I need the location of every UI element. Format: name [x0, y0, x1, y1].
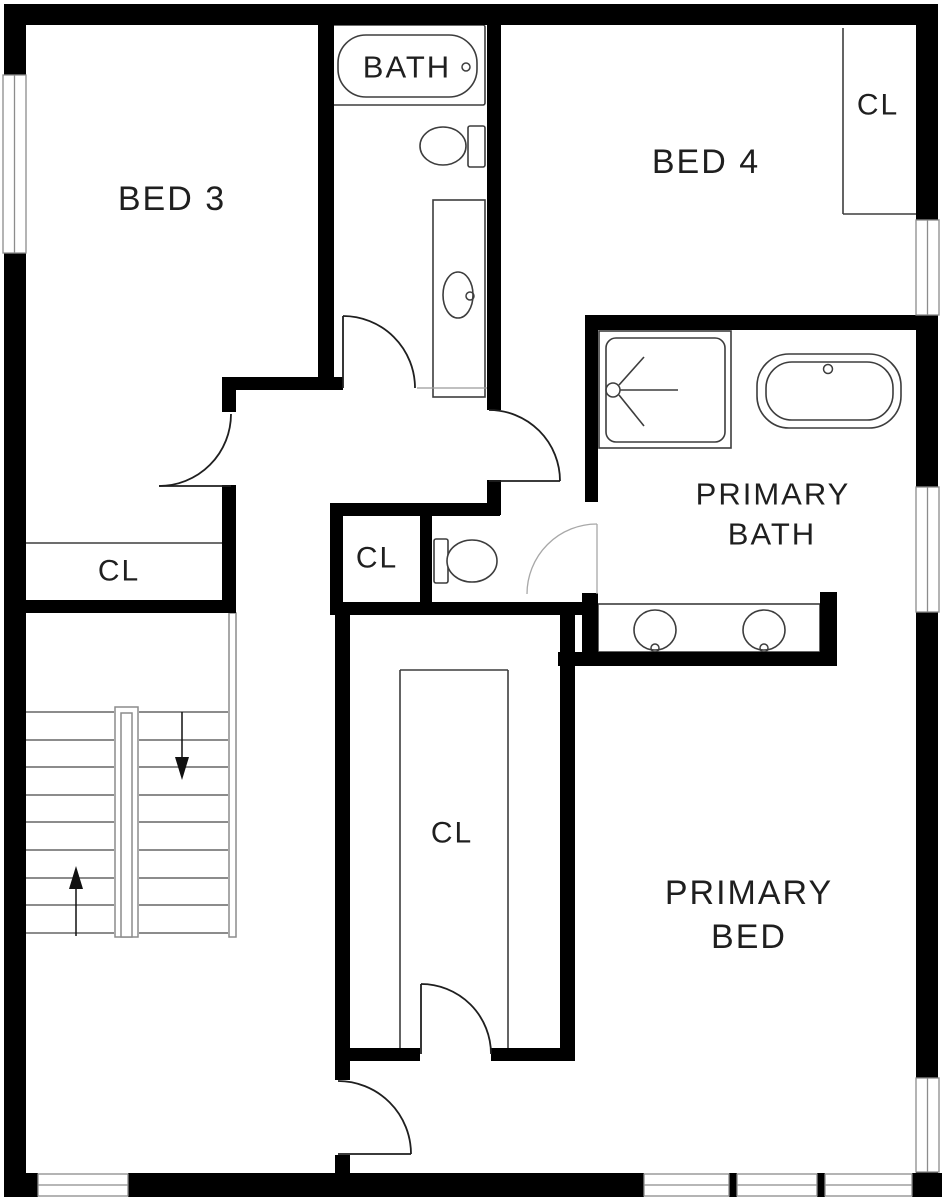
- window-mullion-2: [817, 1173, 825, 1197]
- stair-center-rail-inner: [121, 713, 132, 937]
- wall-bath-east: [487, 25, 501, 410]
- bed-3-label: BED 3: [118, 180, 226, 218]
- wall-top: [4, 4, 938, 25]
- floor-plan-canvas: BATHBED 3BED 4CLCLCLCLPRIMARYBATHPRIMARY…: [0, 0, 942, 1201]
- wall-bed-door-stub: [335, 1155, 350, 1175]
- shower-arm-down: [619, 395, 644, 426]
- door-bath-swing-arc: [343, 316, 415, 388]
- primary-bed-label-2: BED: [711, 918, 787, 956]
- wall-primary-bath-north: [585, 315, 916, 330]
- toilet-tank-hall: [434, 539, 448, 583]
- bathtub-faucet: [462, 63, 470, 71]
- toilet-bowl-hall: [447, 540, 497, 582]
- primary-tub-faucet: [824, 365, 833, 374]
- wall-right-1: [916, 4, 938, 220]
- door-toilet-room-swing-arc: [527, 524, 597, 594]
- primary-vanity-counter: [598, 604, 820, 652]
- wall-walkin-south-west: [335, 1048, 420, 1061]
- primary-bath-label-1: PRIMARY: [696, 477, 851, 512]
- bed4-closet-label: CL: [857, 89, 899, 122]
- wall-left-lower: [4, 253, 26, 1197]
- bath-sink: [443, 272, 473, 318]
- wall-walkin-west: [335, 613, 350, 1080]
- wall-right-3: [916, 612, 938, 1078]
- wall-bed3-closet-south: [26, 600, 236, 613]
- wall-primary-bath-west: [585, 315, 598, 502]
- wall-primary-bath-south: [558, 652, 837, 666]
- door-walkin-closet-swing-arc: [421, 984, 491, 1054]
- wall-toilet-south: [330, 602, 585, 615]
- wall-bed3-east-lower: [222, 485, 236, 613]
- wall-bottom-left-corner: [4, 1173, 38, 1197]
- wall-bed3-south: [222, 377, 343, 390]
- wall-bottom-right-corner: [912, 1173, 942, 1197]
- wall-hall-closet-north: [330, 503, 500, 516]
- wall-bottom-main: [128, 1173, 644, 1197]
- bathtub-label: BATH: [363, 50, 451, 85]
- wall-vanity-east-stub: [820, 592, 837, 666]
- bed-4-label: BED 4: [652, 143, 760, 181]
- door-bed3-swing-arc: [159, 414, 231, 486]
- wall-walkin-south-east: [491, 1048, 573, 1061]
- door-hall-suite-swing-arc: [489, 410, 560, 481]
- wall-right-2: [916, 315, 938, 487]
- shower-head: [606, 383, 620, 397]
- bed3-closet-label: CL: [98, 555, 140, 588]
- shower-arm-up: [619, 357, 644, 385]
- primary-bed-label-1: PRIMARY: [665, 874, 833, 912]
- toilet-bowl-bath: [420, 127, 466, 165]
- walkin-closet-label: CL: [431, 817, 473, 850]
- primary-bath-label-2: BATH: [728, 517, 816, 552]
- toilet-tank-bath: [468, 126, 485, 167]
- window-mullion-1: [729, 1173, 737, 1197]
- floor-plan: BATHBED 3BED 4CLCLCLCLPRIMARYBATHPRIMARY…: [0, 0, 942, 1201]
- wall-bath-west: [318, 25, 334, 390]
- wall-closet-toilet-divide: [420, 515, 432, 613]
- wall-toilet-door-stub: [582, 593, 598, 652]
- wall-bed3-door-pillar: [222, 377, 236, 412]
- hall-closet-label: CL: [356, 542, 398, 575]
- primary-tub-inner: [766, 362, 893, 420]
- stair-side-rail: [229, 613, 236, 937]
- wall-walkin-east: [560, 612, 575, 1061]
- door-primary-bed-swing-arc: [338, 1081, 411, 1154]
- stair-down-arrow-head: [175, 757, 189, 780]
- wall-hall-closet-west: [330, 503, 343, 613]
